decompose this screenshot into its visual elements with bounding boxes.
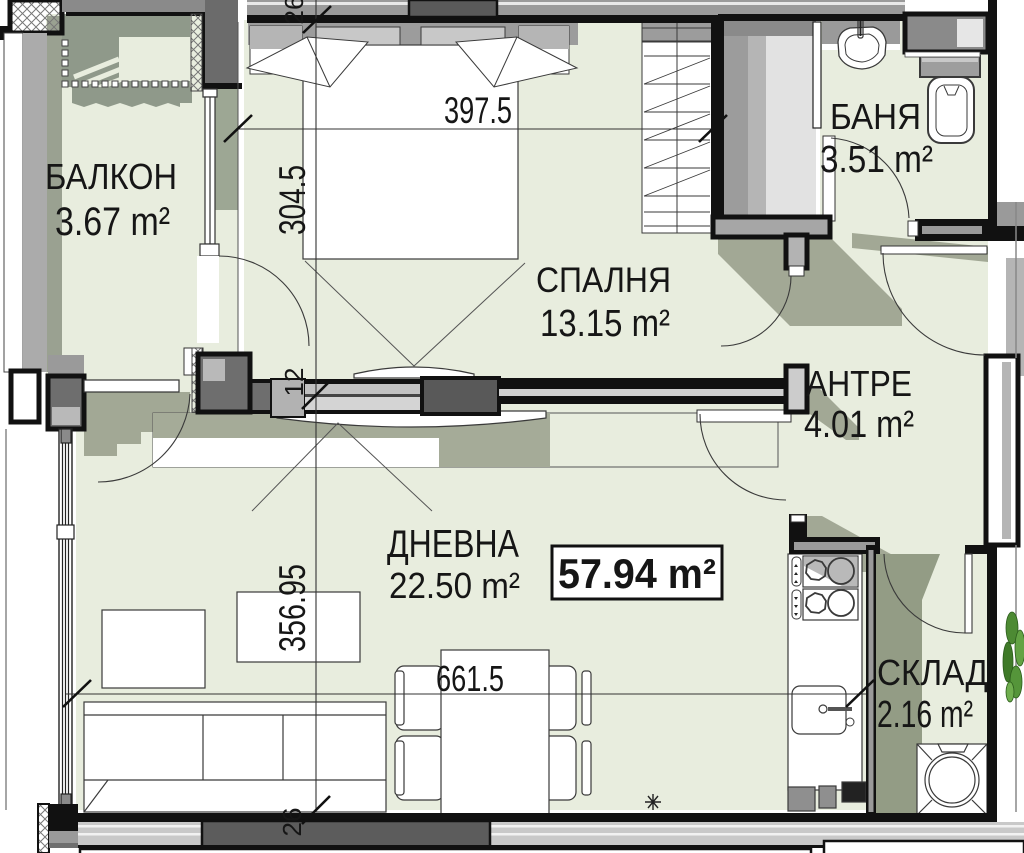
svg-text:АНТРЕ: АНТРЕ	[806, 363, 912, 404]
svg-text:4.01 m²: 4.01 m²	[804, 404, 914, 446]
svg-text:57.94 m²: 57.94 m²	[558, 550, 716, 597]
svg-text:397.5: 397.5	[444, 90, 512, 131]
svg-text:СПАЛНЯ: СПАЛНЯ	[536, 261, 671, 300]
svg-text:304.5: 304.5	[272, 165, 313, 235]
svg-text:13.15 m²: 13.15 m²	[540, 303, 670, 345]
svg-text:3.51 m²: 3.51 m²	[820, 139, 933, 181]
svg-text:26: 26	[277, 808, 307, 837]
svg-text:661.5: 661.5	[436, 658, 504, 699]
svg-text:2.16 m²: 2.16 m²	[877, 694, 973, 736]
svg-text:БАЛКОН: БАЛКОН	[45, 156, 177, 197]
svg-text:3.67 m²: 3.67 m²	[55, 200, 170, 244]
svg-text:356.95: 356.95	[272, 564, 313, 652]
svg-text:12: 12	[279, 368, 309, 397]
svg-text:СКЛАД: СКЛАД	[877, 652, 988, 693]
svg-text:ДНЕВНА: ДНЕВНА	[387, 523, 519, 566]
svg-text:22.50 m²: 22.50 m²	[389, 565, 520, 606]
svg-text:БАНЯ: БАНЯ	[830, 96, 921, 137]
svg-text:26: 26	[279, 0, 309, 24]
